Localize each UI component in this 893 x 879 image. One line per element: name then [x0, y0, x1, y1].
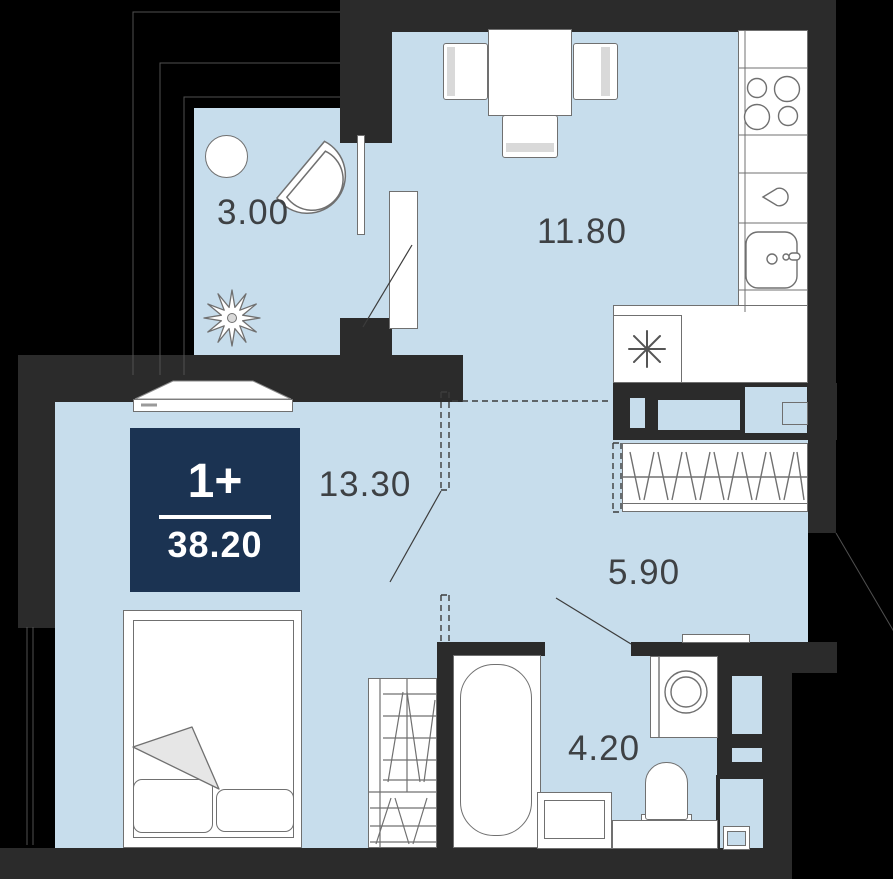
wall-left [18, 402, 55, 628]
bed-pillow-right [216, 789, 294, 832]
balcony-round-table [205, 135, 248, 178]
floor-plan: 3.00 11.80 13.30 5.90 4.20 1+ 38.20 [0, 0, 893, 879]
bedroom-window-sill [133, 399, 293, 412]
wall-balcony-door-lower [340, 318, 392, 358]
dining-chair-left [443, 43, 488, 100]
shaft-duct-1 [732, 676, 762, 734]
dining-table [488, 29, 572, 116]
vent-duct-box [782, 402, 808, 425]
chair-backrest [447, 47, 455, 96]
area-label-bathroom: 4.20 [568, 729, 640, 769]
hallway-wardrobe-strip [622, 503, 808, 512]
bathroom-door-passage [545, 642, 631, 658]
balcony-window [357, 135, 365, 235]
wall-top [340, 0, 832, 32]
chair-backrest [506, 143, 554, 152]
washbasin-bowl [544, 800, 605, 839]
dining-chair-right [573, 43, 618, 100]
area-label-hallway: 5.90 [608, 553, 680, 593]
kitchen-counter-column [738, 30, 808, 313]
unit-type-label: 1+ [188, 458, 243, 506]
unit-badge: 1+ 38.20 [130, 428, 300, 592]
area-label-bedroom: 13.30 [319, 465, 412, 505]
vent-duct-1 [630, 398, 645, 428]
hallway-wardrobe [622, 443, 808, 505]
bedroom-wardrobe [368, 678, 437, 848]
shaft-hatch-inner [727, 831, 746, 846]
wall-bathroom-top-left [437, 642, 545, 656]
wall-right-bottom [763, 672, 792, 879]
area-label-kitchen: 11.80 [537, 212, 627, 252]
unit-total-area: 38.20 [167, 527, 262, 563]
wall-bathroom-left [437, 642, 453, 848]
fridge [613, 315, 682, 383]
balcony-door-leaf [389, 191, 418, 329]
wall-bathroom-top-mid [631, 642, 701, 656]
shaft-duct-2 [732, 748, 762, 762]
badge-divider [159, 515, 271, 519]
wall-balcony-door-upper [340, 32, 392, 143]
bathtub-basin [460, 664, 532, 836]
chair-backrest [601, 47, 610, 96]
toilet-cistern [612, 820, 718, 849]
bed-pillow-left [133, 779, 213, 833]
area-label-balcony: 3.00 [217, 193, 289, 233]
wall-hallway-bottom [700, 642, 837, 673]
toilet-bowl [645, 762, 688, 820]
door-threshold [682, 634, 750, 643]
dining-chair-bottom [502, 115, 558, 158]
washing-machine [650, 656, 718, 738]
wall-bedroom-top [18, 355, 463, 402]
vent-duct-2 [658, 400, 740, 430]
wall-right [808, 0, 836, 533]
wall-bottom [0, 848, 792, 879]
